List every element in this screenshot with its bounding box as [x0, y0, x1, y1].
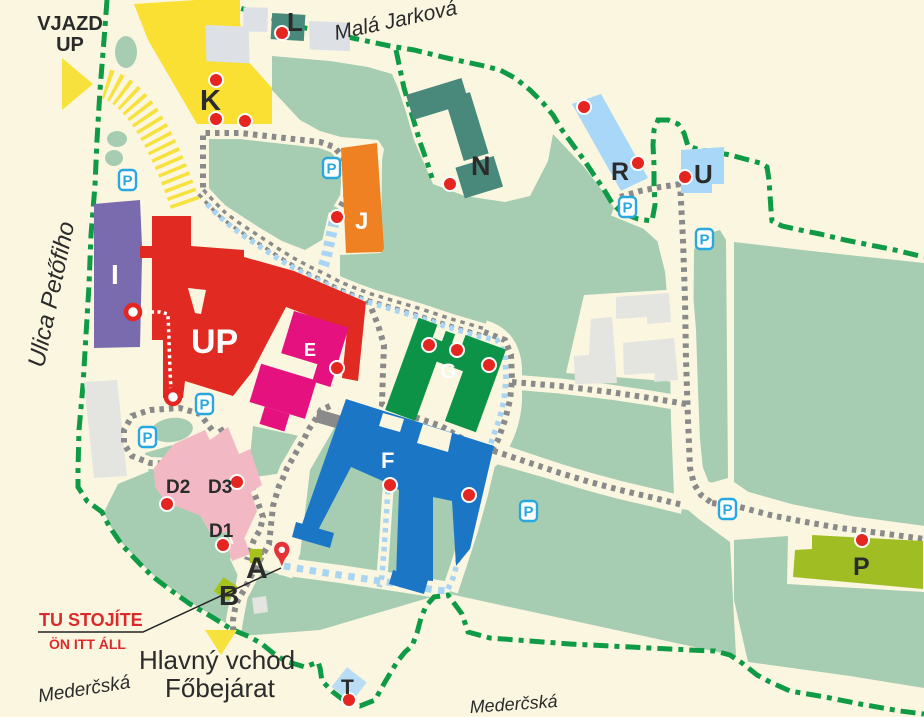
svg-text:P: P	[622, 200, 632, 217]
svg-text:TU STOJÍTE: TU STOJÍTE	[39, 609, 143, 630]
svg-text:T: T	[341, 676, 354, 699]
svg-text:D2: D2	[166, 477, 190, 498]
svg-text:F: F	[381, 448, 394, 473]
svg-text:R: R	[611, 158, 629, 186]
svg-text:P: P	[699, 232, 709, 249]
svg-text:U: U	[694, 159, 713, 189]
svg-text:I: I	[111, 259, 119, 290]
svg-text:P: P	[122, 173, 132, 190]
svg-text:Főbejárat: Főbejárat	[165, 673, 276, 703]
svg-text:N: N	[471, 151, 491, 181]
svg-text:P: P	[199, 397, 209, 414]
svg-text:B: B	[219, 580, 239, 611]
svg-text:P: P	[326, 161, 336, 178]
svg-text:D3: D3	[208, 477, 232, 498]
svg-text:Hlavný vchod: Hlavný vchod	[139, 645, 295, 675]
svg-text:VJAZD: VJAZD	[37, 13, 103, 35]
svg-text:P: P	[722, 502, 732, 519]
svg-text:P: P	[853, 553, 870, 581]
svg-text:E: E	[304, 340, 316, 360]
svg-text:P: P	[142, 430, 152, 447]
svg-text:P: P	[523, 504, 533, 521]
svg-text:G: G	[440, 360, 456, 383]
svg-text:J: J	[355, 208, 368, 235]
svg-text:K: K	[200, 85, 221, 117]
svg-text:D1: D1	[209, 521, 234, 542]
svg-text:ÖN ITT ÁLL: ÖN ITT ÁLL	[49, 636, 126, 652]
svg-text:L: L	[287, 7, 303, 37]
svg-text:UP: UP	[56, 34, 84, 56]
svg-text:UP: UP	[191, 323, 238, 361]
svg-text:A: A	[246, 552, 268, 585]
